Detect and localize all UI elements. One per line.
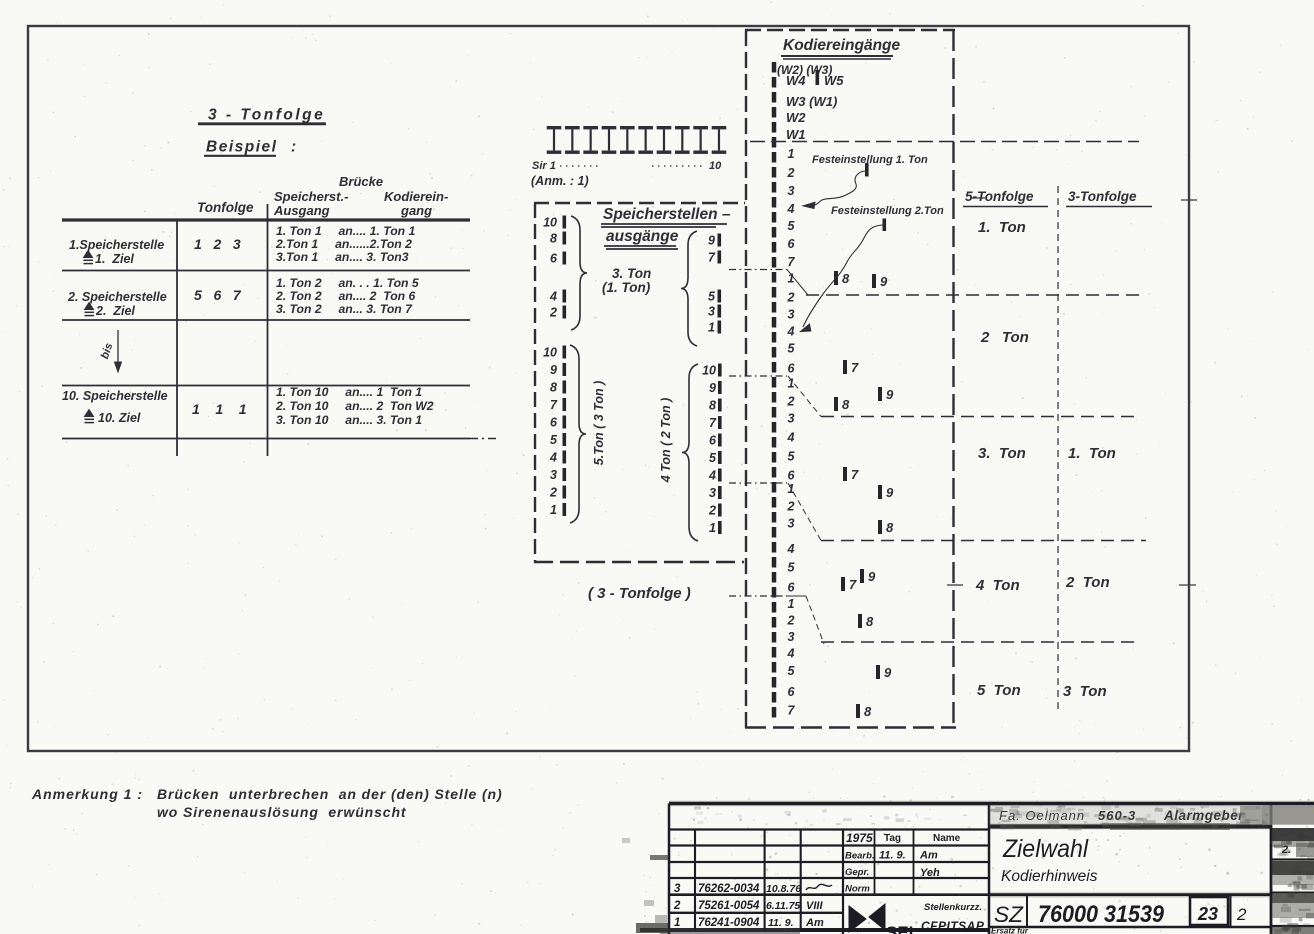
svg-text:9: 9 [709, 381, 716, 395]
svg-text:Am: Am [805, 917, 824, 929]
svg-text:3: 3 [788, 630, 795, 644]
svg-text:W2: W2 [786, 110, 806, 125]
svg-text:9: 9 [884, 665, 892, 680]
svg-text:3: 3 [788, 517, 795, 531]
svg-text:4 Ton: 4 Ton [975, 577, 1020, 594]
svg-text:2: 2 [787, 395, 795, 409]
svg-text:2.Ton 1 an......2.Ton 2: 2.Ton 1 an......2.Ton 2 [275, 237, 412, 251]
svg-text:Beispiel: Beispiel [206, 139, 277, 156]
svg-text:3 Ton: 3 Ton [1063, 683, 1107, 700]
svg-text:6: 6 [550, 416, 558, 430]
svg-text:(Anm. : 1): (Anm. : 1) [531, 174, 589, 188]
svg-text:11. 9.: 11. 9. [879, 850, 906, 862]
svg-text:6: 6 [550, 252, 558, 266]
svg-text:3: 3 [788, 412, 795, 426]
svg-text:3. Ton 10 an.... 3. Ton 1: 3. Ton 10 an.... 3. Ton 1 [276, 413, 422, 427]
svg-text:4: 4 [787, 431, 795, 445]
svg-text:2 Ton: 2 Ton [980, 329, 1029, 346]
svg-text:Speicherstellen –: Speicherstellen – [603, 206, 731, 223]
svg-text:6: 6 [788, 237, 796, 251]
svg-text:2. Speicherstelle: 2. Speicherstelle [67, 290, 167, 304]
svg-text:gang: gang [400, 203, 432, 218]
svg-text:1: 1 [788, 147, 795, 161]
svg-text:1. Ton 10 an.... 1 Ton 1: 1. Ton 10 an.... 1 Ton 1 [276, 385, 422, 399]
svg-text:W1: W1 [786, 127, 806, 142]
svg-text:2 Ton: 2 Ton [1065, 574, 1110, 591]
svg-text:10. Ziel: 10. Ziel [98, 411, 141, 425]
svg-text:76262-0034: 76262-0034 [698, 883, 760, 895]
svg-text:11. 9.: 11. 9. [768, 917, 794, 929]
svg-text:5 6 7: 5 6 7 [194, 287, 242, 303]
svg-text:7: 7 [550, 398, 558, 412]
svg-text:Anmerkung 1 :: Anmerkung 1 : [31, 786, 143, 802]
svg-text:Ersatz für: Ersatz für [991, 927, 1029, 934]
svg-text:6.11.75: 6.11.75 [766, 900, 800, 912]
svg-text:Festeinstellung 1. Ton: Festeinstellung 1. Ton [812, 154, 928, 166]
svg-text:5: 5 [788, 219, 796, 233]
svg-text:3: 3 [788, 308, 795, 322]
svg-text:76000 31539: 76000 31539 [1038, 901, 1165, 928]
svg-text:Bearb.: Bearb. [845, 851, 875, 862]
svg-text:Brücke: Brücke [339, 174, 383, 189]
svg-text:6: 6 [788, 469, 796, 483]
svg-text:W4: W4 [786, 73, 806, 88]
svg-text:8: 8 [842, 397, 850, 412]
svg-text:3-Tonfolge: 3-Tonfolge [1068, 189, 1137, 204]
svg-text:8: 8 [866, 614, 874, 629]
svg-text:1. Ton 1 an.... 1. Ton 1: 1. Ton 1 an.... 1. Ton 1 [276, 224, 415, 238]
svg-text:7: 7 [851, 360, 859, 375]
svg-text:Festeinstellung 2.Ton: Festeinstellung 2.Ton [831, 205, 944, 217]
svg-text:3 - Tonfolge: 3 - Tonfolge [208, 107, 325, 124]
svg-text:8: 8 [550, 232, 557, 246]
svg-text:10.8.76: 10.8.76 [766, 883, 801, 895]
svg-text:1.Speicherstelle: 1.Speicherstelle [69, 238, 164, 252]
svg-text:4: 4 [787, 325, 795, 339]
svg-text:7: 7 [709, 416, 717, 430]
svg-text:Kodiereingänge: Kodiereingänge [783, 37, 901, 54]
svg-text:1975: 1975 [846, 831, 873, 845]
svg-text:5: 5 [709, 451, 717, 465]
svg-text:Yeh: Yeh [920, 867, 940, 879]
svg-text:8: 8 [709, 399, 716, 413]
svg-text:(1. Ton): (1. Ton) [602, 280, 651, 295]
svg-text:2. Ziel: 2. Ziel [95, 304, 135, 318]
svg-text:1: 1 [788, 377, 795, 391]
svg-text:4: 4 [787, 542, 795, 556]
svg-text:Kodierein-: Kodierein- [384, 189, 448, 204]
svg-text:7: 7 [849, 577, 857, 592]
svg-text:Kodierhinweis: Kodierhinweis [1001, 868, 1098, 885]
svg-text:1. Ton: 1. Ton [978, 219, 1026, 236]
svg-text:5: 5 [708, 290, 716, 304]
svg-text:Norm: Norm [845, 884, 870, 895]
svg-text:SZ: SZ [994, 902, 1025, 927]
svg-text:75261-0054: 75261-0054 [698, 900, 760, 912]
svg-text:wo Sirenenauslösung erwünscht: wo Sirenenauslösung erwünscht [157, 804, 407, 820]
svg-text:5-Tonfolge: 5-Tonfolge [965, 189, 1034, 204]
svg-text:9: 9 [550, 363, 557, 377]
svg-text:VIII: VIII [806, 900, 823, 912]
svg-text:CFPITSAP: CFPITSAP [921, 919, 985, 933]
svg-text:1 2 3: 1 2 3 [194, 236, 241, 252]
svg-text:8: 8 [886, 520, 894, 535]
svg-text:2: 2 [787, 614, 795, 628]
svg-text:10. Speicherstelle: 10. Speicherstelle [62, 389, 168, 403]
svg-text:W3 (W1): W3 (W1) [786, 94, 837, 109]
svg-text:4: 4 [787, 202, 795, 216]
svg-text:1 1 1: 1 1 1 [192, 401, 247, 417]
svg-text:3.Ton 1 an.... 3. Ton3: 3.Ton 1 an.... 3. Ton3 [276, 250, 409, 264]
svg-text:1. Ton: 1. Ton [1068, 445, 1116, 462]
svg-text:76241-0904: 76241-0904 [698, 917, 760, 929]
svg-text:6: 6 [788, 362, 796, 376]
svg-text:8: 8 [842, 271, 850, 286]
svg-text:Am: Am [919, 850, 938, 862]
svg-text:7: 7 [788, 255, 796, 269]
svg-text:4 Ton ( 2 Ton ): 4 Ton ( 2 Ton ) [659, 398, 673, 483]
svg-text:10: 10 [702, 364, 716, 378]
svg-text:4: 4 [549, 451, 557, 465]
svg-text:10: 10 [709, 160, 722, 172]
svg-text:8: 8 [864, 704, 872, 719]
svg-text:4: 4 [708, 469, 716, 483]
svg-text:3. Ton 2 an... 3. Ton 7: 3. Ton 2 an... 3. Ton 7 [276, 302, 413, 316]
svg-text:ausgänge: ausgänge [606, 228, 679, 245]
svg-text:Gepr.: Gepr. [845, 867, 869, 878]
svg-text:4: 4 [549, 290, 557, 304]
svg-text:2. Ton 10 an.... 2 Ton W2: 2. Ton 10 an.... 2 Ton W2 [275, 399, 434, 413]
svg-text:3. Ton: 3. Ton [612, 266, 651, 281]
svg-text:6: 6 [788, 685, 796, 699]
svg-text:9: 9 [868, 569, 876, 584]
svg-text:Sir 1: Sir 1 [532, 160, 556, 172]
svg-text:1: 1 [674, 917, 680, 929]
svg-text:1. Ton 2 an. . . 1. Ton 5: 1. Ton 2 an. . . 1. Ton 5 [276, 276, 419, 290]
svg-text:W5: W5 [824, 73, 844, 88]
svg-text:Tonfolge: Tonfolge [197, 200, 254, 215]
svg-text:2: 2 [787, 500, 795, 514]
svg-text:2: 2 [787, 291, 795, 305]
svg-text:5: 5 [788, 342, 796, 356]
svg-text:5: 5 [788, 664, 796, 678]
svg-text:4: 4 [787, 647, 795, 661]
svg-text:5.Ton ( 3 Ton ): 5.Ton ( 3 Ton ) [592, 381, 606, 465]
svg-text:5: 5 [788, 561, 796, 575]
svg-text:2: 2 [787, 166, 795, 180]
svg-text:2. Ton 2 an.... 2 Ton 6: 2. Ton 2 an.... 2 Ton 6 [275, 289, 415, 303]
svg-text:3. Ton: 3. Ton [978, 445, 1026, 462]
svg-text:10: 10 [543, 346, 557, 360]
svg-text:3: 3 [550, 468, 557, 482]
svg-text:Name: Name [933, 833, 961, 844]
svg-text:9: 9 [708, 234, 715, 248]
svg-text:5: 5 [550, 433, 558, 447]
svg-text:7: 7 [708, 251, 716, 265]
svg-text:23: 23 [1197, 904, 1218, 924]
svg-text:Speicherst.-: Speicherst.- [274, 189, 348, 204]
svg-text:2: 2 [1236, 905, 1247, 924]
svg-text:5 Ton: 5 Ton [977, 682, 1021, 699]
svg-text:Zielwahl: Zielwahl [1002, 835, 1089, 863]
svg-text:3: 3 [674, 883, 681, 895]
svg-text:( 3 - Tonfolge ): ( 3 - Tonfolge ) [588, 585, 691, 602]
svg-text:1: 1 [708, 321, 715, 335]
svg-text:Brücken unterbrechen an der: Brücken unterbrechen an der (den) Stelle… [157, 786, 503, 802]
svg-text::: : [291, 139, 296, 156]
svg-text:Stellenkurzz.: Stellenkurzz. [924, 902, 982, 913]
svg-text:1: 1 [709, 521, 716, 535]
svg-text:6: 6 [788, 581, 796, 595]
svg-text:3: 3 [709, 486, 716, 500]
svg-text:2: 2 [549, 306, 557, 320]
svg-text:9: 9 [886, 485, 894, 500]
svg-text:3: 3 [708, 305, 715, 319]
svg-text:3: 3 [788, 184, 795, 198]
svg-text:2: 2 [549, 486, 557, 500]
svg-text:8: 8 [550, 381, 557, 395]
svg-text:Ausgang: Ausgang [273, 203, 330, 218]
svg-text:1. Ziel: 1. Ziel [95, 252, 134, 266]
svg-text:5: 5 [788, 450, 796, 464]
svg-text:7: 7 [788, 704, 796, 718]
svg-text:2: 2 [673, 900, 681, 912]
svg-text:SEL: SEL [886, 923, 919, 934]
svg-text:7: 7 [851, 467, 859, 482]
svg-text:9: 9 [880, 274, 888, 289]
svg-text:10: 10 [543, 216, 557, 230]
svg-text:bis: bis [99, 342, 115, 361]
svg-text:2: 2 [708, 504, 716, 518]
svg-text:6: 6 [709, 434, 717, 448]
svg-text:1: 1 [550, 503, 557, 517]
svg-text:1: 1 [788, 597, 795, 611]
